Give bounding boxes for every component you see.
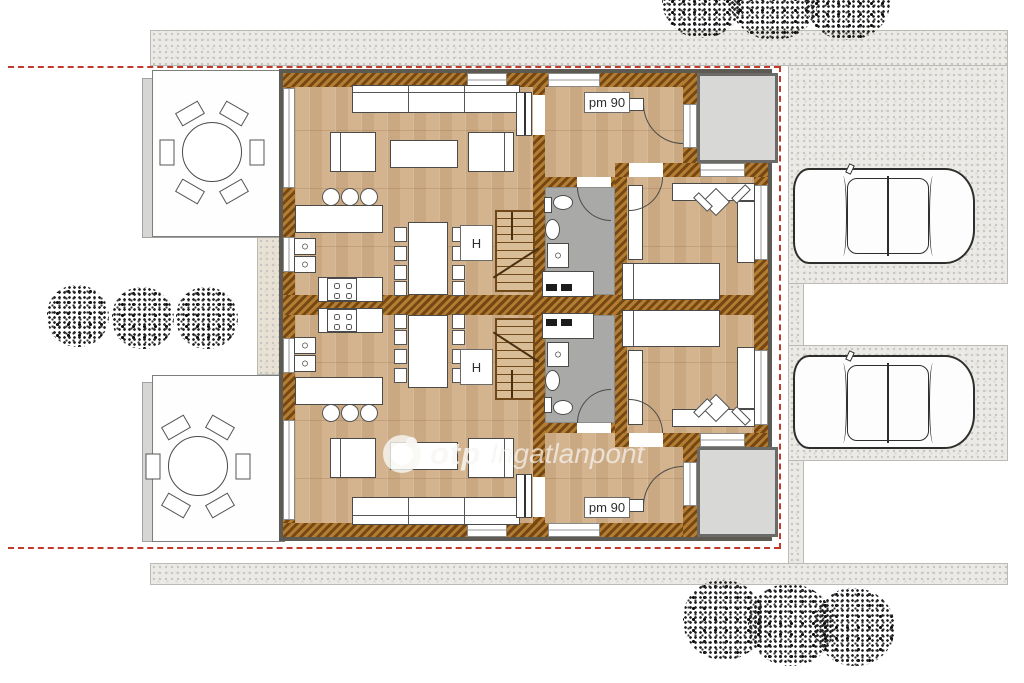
boundary-line-right [779, 66, 781, 549]
round-table-icon [168, 436, 228, 496]
coffee-table-icon [390, 140, 458, 168]
bar-stool-icon [341, 188, 359, 206]
dining-chair-icon [452, 265, 465, 280]
entrance-porch-bottom [697, 447, 778, 537]
bush-icon [112, 287, 174, 349]
entry-door-opening-bottom [683, 462, 697, 506]
stove-icon [327, 278, 357, 301]
terrace-chair-icon [146, 454, 161, 480]
kitchen-sink-icon [294, 337, 316, 354]
floor-plan: H pm 90 H [0, 0, 1024, 683]
terrace-door-window-top [283, 88, 295, 188]
terrace-chair-icon [250, 140, 265, 166]
tree-icon [815, 588, 895, 666]
washbasin-icon [545, 219, 560, 240]
hall-cabinet [628, 98, 644, 111]
terrace-chair-icon [236, 454, 251, 480]
bar-counter-icon [295, 377, 383, 405]
coffee-table-icon [390, 442, 458, 470]
car-roof-line [887, 363, 889, 443]
gravel-path-top [150, 30, 1008, 66]
car-icon [793, 355, 975, 449]
bedroom-door-opening-bottom [629, 433, 663, 447]
bush-icon [47, 285, 109, 347]
desk-icon [737, 201, 755, 263]
hall-window-bottom [548, 523, 600, 537]
washbasin-icon [545, 370, 560, 391]
dining-chair-icon [452, 330, 465, 345]
entry-door-opening-top [683, 104, 697, 148]
armchair-icon [468, 438, 514, 478]
bar-stool-icon [322, 188, 340, 206]
radiator-icon [516, 474, 532, 518]
bedroom-door-opening-top [629, 163, 663, 177]
kitchen-sink-icon [294, 355, 316, 372]
hall-cabinet [628, 499, 644, 512]
appliance-mark [546, 319, 557, 326]
desk-icon [737, 347, 755, 409]
bath-door-opening-top [577, 177, 611, 187]
stair-closet-bottom: H [460, 349, 493, 385]
toilet-icon [553, 400, 573, 415]
washing-machine-icon [547, 243, 569, 268]
dining-chair-icon [452, 281, 465, 296]
bar-stool-icon [360, 188, 378, 206]
bath-counter [542, 313, 594, 339]
hall-passage-bottom [533, 477, 545, 517]
stair-closet-label: H [472, 361, 481, 374]
sofa-icon [352, 85, 520, 113]
gravel-strip-right-mid [788, 283, 804, 346]
bar-stool-icon [322, 404, 340, 422]
toilet-icon [544, 197, 552, 213]
door-size-text: pm 90 [589, 501, 625, 514]
sofa-icon [352, 497, 520, 525]
door-size-text: pm 90 [589, 96, 625, 109]
boundary-line-bottom [8, 547, 780, 549]
car-rear-window [929, 176, 937, 256]
bar-stool-icon [341, 404, 359, 422]
armchair-icon [468, 132, 514, 172]
dining-chair-icon [394, 227, 407, 242]
hall-window-top [548, 73, 600, 87]
appliance-mark [561, 319, 572, 326]
bath-door-opening-bottom [577, 423, 611, 433]
stair-closet-label: H [472, 237, 481, 250]
hall-passage-top [533, 95, 545, 135]
bar-stool-icon [360, 404, 378, 422]
stove-icon [327, 309, 357, 332]
dining-chair-icon [394, 314, 407, 329]
stair-direction-line [511, 212, 513, 240]
appliance-mark [561, 284, 572, 291]
appliance-mark [546, 284, 557, 291]
armchair-icon [330, 132, 376, 172]
dining-chair-icon [394, 265, 407, 280]
bush-icon [176, 287, 238, 349]
toilet-icon [544, 397, 552, 413]
armchair-icon [330, 438, 376, 478]
staircase-icon [495, 318, 535, 400]
door-size-label-bottom: pm 90 [584, 497, 630, 518]
bar-counter-icon [295, 205, 383, 233]
bedroom-window-top [700, 163, 745, 177]
round-table-icon [182, 122, 242, 182]
car-rear-window [929, 363, 937, 443]
dining-table-icon [408, 315, 448, 388]
car-icon [793, 168, 975, 264]
boundary-line-top [8, 66, 780, 68]
dining-chair-icon [452, 314, 465, 329]
door-size-label-top: pm 90 [584, 92, 630, 113]
stair-direction-line [511, 370, 513, 398]
bedroom-side-window-top [754, 185, 768, 260]
car-windshield [839, 176, 847, 256]
dining-chair-icon [394, 349, 407, 364]
kitchen-sink-icon [294, 238, 316, 255]
dining-table-icon [408, 222, 448, 295]
bed-icon [622, 263, 720, 300]
dining-chair-icon [394, 246, 407, 261]
terrace-chair-icon [160, 140, 175, 166]
entrance-porch-top [697, 73, 778, 163]
toilet-icon [553, 195, 573, 210]
car-roof-line [887, 176, 889, 256]
washing-machine-icon [547, 342, 569, 367]
staircase-icon [495, 210, 535, 292]
bedroom-side-window-bottom [754, 350, 768, 425]
dining-chair-icon [394, 330, 407, 345]
bedroom-window-bottom [700, 433, 745, 447]
gravel-strip-right-low [788, 460, 804, 564]
gravel-path-bottom [150, 563, 1008, 585]
stair-closet-top: H [460, 225, 493, 261]
living-window-bottom [467, 523, 507, 537]
radiator-icon [516, 92, 532, 136]
terrace-door-window-bottom [283, 420, 295, 520]
car-windshield [839, 363, 847, 443]
dining-chair-icon [394, 368, 407, 383]
kitchen-sink-icon [294, 256, 316, 273]
bed-icon [622, 310, 720, 347]
dining-chair-icon [394, 281, 407, 296]
